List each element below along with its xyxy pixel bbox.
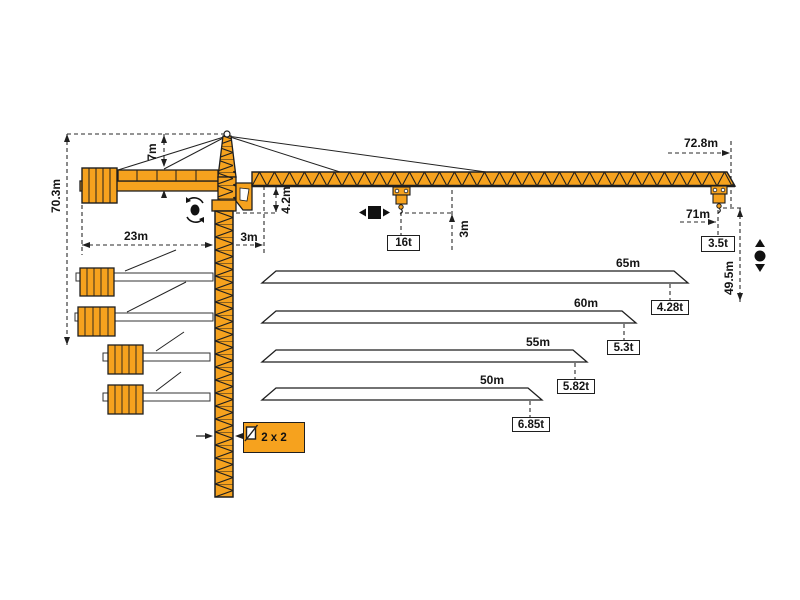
dim-lower-hook-height: 49.5m xyxy=(722,256,736,300)
hook-mid xyxy=(399,205,403,209)
mast-section-box: 2 x 2 xyxy=(243,422,305,453)
dim-tip-radius: 71m xyxy=(680,207,716,221)
counterweight-variants xyxy=(75,250,213,414)
tie-ropes xyxy=(118,136,486,172)
jib-length-55m: 55m xyxy=(518,335,558,349)
jib-bar-60m xyxy=(262,311,636,323)
jib-bar-65m xyxy=(262,271,688,283)
dim-counter-jib: 23m xyxy=(116,229,156,243)
slewing-unit xyxy=(212,200,236,211)
dim-max-radius: 72.8m xyxy=(675,136,727,150)
apex-pulley xyxy=(224,131,230,137)
mast-section-label: 2 x 2 xyxy=(261,432,287,444)
hook-tip xyxy=(717,204,721,208)
tip-load-55m-box: 5.82t xyxy=(557,379,595,394)
max-capacity-box: 16t xyxy=(387,235,420,251)
trolley-mid xyxy=(393,187,410,214)
cab xyxy=(236,183,252,210)
jib-bar-50m xyxy=(262,388,542,400)
cab-window xyxy=(240,188,249,201)
jib-bar-55m xyxy=(262,350,587,362)
jib-length-50m: 50m xyxy=(472,373,512,387)
crane-diagram: 70.3m 7m 23m 3m 4.2m 3m 72.8m 71m 49.5m … xyxy=(0,0,800,600)
tip-load-50m-box: 6.85t xyxy=(512,417,550,432)
mast-section-icon xyxy=(244,423,259,443)
counterweight-stack xyxy=(82,168,117,203)
dim-total-height: 70.3m xyxy=(49,174,63,218)
jib-length-60m: 60m xyxy=(566,296,606,310)
dim-jib-depth: 4.2m xyxy=(279,182,293,218)
tip-capacity-box: 3.5t xyxy=(701,236,735,252)
dim-foot-offset: 3m xyxy=(234,230,264,244)
dim-head-height: 7m xyxy=(145,140,159,164)
jib-length-65m: 65m xyxy=(608,256,648,270)
slewing-icon xyxy=(186,197,204,223)
tip-load-65m-box: 4.28t xyxy=(651,300,689,315)
jib xyxy=(252,172,735,186)
trolley-travel-icon xyxy=(359,206,390,219)
tip-load-60m-box: 5.3t xyxy=(607,340,640,355)
dim-hook-approach: 3m xyxy=(457,217,471,241)
hoist-icon xyxy=(755,239,766,272)
